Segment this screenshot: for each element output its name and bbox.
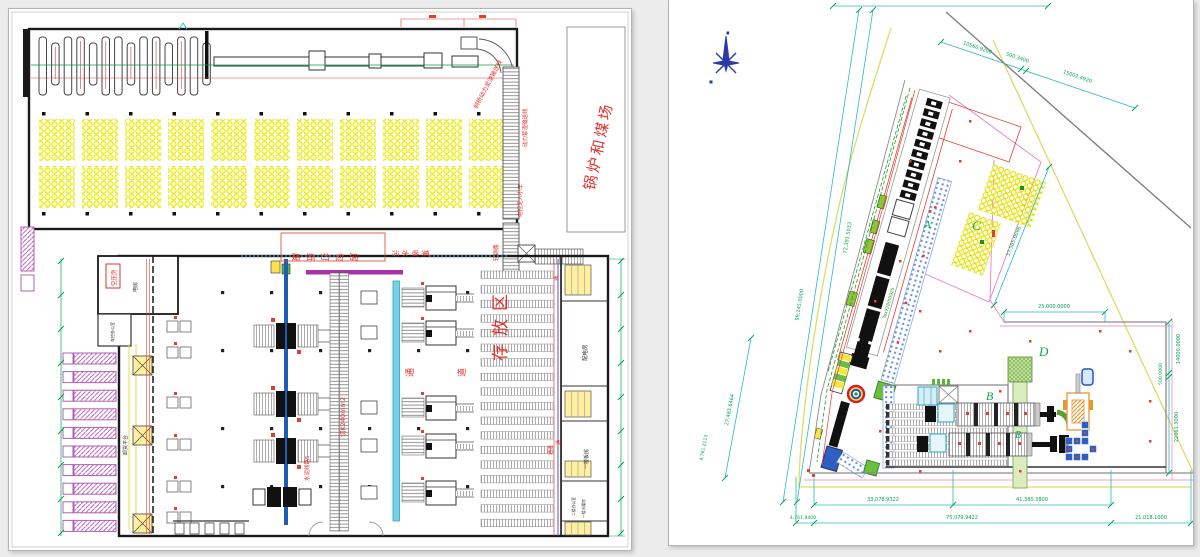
room-1-label: 配电房 (581, 344, 589, 361)
bale-storage (39, 119, 505, 208)
dim-left-4: 4,761.2113 (699, 434, 710, 461)
toilet-stall (175, 523, 184, 534)
cable-label: 切K240mm2 (339, 397, 347, 437)
aisle-side-label: 通道 (547, 445, 554, 455)
position-dot (1129, 350, 1132, 353)
column-dot (129, 212, 133, 216)
pulper-unit (271, 433, 275, 437)
dim-bottom-e: 21,018.1000 (1135, 515, 1167, 521)
bale-stack (469, 166, 505, 208)
toilet-stall (190, 523, 199, 534)
pulper-unit (298, 393, 318, 415)
truck (74, 502, 116, 513)
rewinder-machine (361, 486, 377, 499)
storage-row (481, 432, 553, 440)
dim-left-3: 27,483.6464 (724, 394, 736, 426)
bale-stack (39, 166, 75, 208)
storage-row (481, 475, 553, 483)
truck (63, 409, 73, 420)
machine-slot (39, 37, 47, 95)
position-dot (939, 350, 942, 353)
unloading-label: 卸货平台 (122, 435, 129, 455)
rewinder-machine (402, 398, 424, 417)
equipment-mark (167, 397, 178, 408)
bale-stack (82, 166, 118, 208)
position-dot (929, 210, 932, 213)
cart-label: 电控无人小车 (516, 183, 524, 217)
column-dot (303, 112, 307, 116)
bale-stack (340, 166, 376, 208)
truck (74, 372, 116, 383)
column-dot (434, 212, 438, 216)
storage-row (481, 373, 553, 381)
rewinder-machine (361, 439, 377, 452)
conveyor-row (886, 404, 889, 410)
equipment-mark (180, 321, 191, 332)
position-dot (1029, 340, 1032, 343)
truck (63, 427, 73, 438)
floor-plan-drawing: 锅炉和煤场 斜桥动力浆渣输送线 动力浆渣输送线 电控无人小车 轻钢棚 空压房 电… (9, 9, 631, 550)
bale-stack (211, 119, 247, 161)
bale-stack (82, 119, 118, 161)
position-dot (909, 160, 912, 163)
truck (74, 409, 116, 420)
equipment-mark (167, 347, 178, 358)
pulper-unit (254, 440, 274, 462)
storage-row (481, 388, 553, 396)
column-dot (319, 427, 322, 430)
rewinder-machine (426, 443, 432, 450)
storage-row (481, 402, 553, 410)
truck (63, 372, 73, 383)
bale-stack (469, 119, 505, 161)
pulper-unit (271, 318, 275, 322)
bale-stack (254, 166, 290, 208)
storage-row (481, 461, 553, 469)
column-dot (466, 427, 469, 430)
bale-stack (168, 119, 204, 161)
bale-stack (426, 119, 462, 161)
column-dot (368, 427, 371, 430)
dim-top-2: 500.3400 (1005, 51, 1030, 64)
area-c-label: C (972, 218, 981, 233)
toilet-stalls (175, 523, 244, 534)
rewinder-machine (426, 490, 432, 497)
pulper-unit (276, 391, 285, 417)
truck (63, 353, 73, 364)
rewinder-machine (421, 317, 424, 320)
floor-plan-sheet: 锅炉和煤场 斜桥动力浆渣输送线 动力浆渣输送线 电控无人小车 轻钢棚 空压房 电… (8, 8, 632, 551)
truck (63, 502, 73, 513)
rewinder-machine (402, 436, 424, 455)
equipment-mark (174, 434, 177, 437)
column-dot (260, 212, 264, 216)
conveyor-row (886, 460, 889, 466)
rewinder-machine (421, 430, 424, 433)
dim-bottom-b: 41,380.3800 (1016, 497, 1048, 503)
equipment-mark (167, 481, 178, 492)
bale-stack (125, 166, 161, 208)
right-rooms: 配电房 一楼板房 二楼办公室 一楼水暖房 通 通 (553, 256, 608, 536)
pulper-unit (287, 391, 296, 417)
dim-top-1: 10560.9200 (962, 40, 993, 56)
rewinder-machine (361, 401, 377, 414)
cyan-conveyor (393, 281, 400, 521)
rewinder-machine (402, 323, 424, 342)
bale-stack (125, 119, 161, 161)
machine-slot (115, 37, 123, 95)
pulper-unit (276, 438, 285, 464)
rewinder-machine (456, 406, 474, 411)
power-room-label: 电房 (132, 282, 139, 292)
machine-slot (190, 37, 198, 95)
site-plan-drawing: Tex7280t0925 (669, 0, 1193, 545)
position-dot (999, 390, 1002, 393)
truck (74, 390, 116, 401)
conveyor-mid-label: 动力浆渣输送线 (521, 108, 529, 147)
scanned-cad-screenshot: 锅炉和煤场 斜桥动力浆渣输送线 动力浆渣输送线 电控无人小车 轻钢棚 空压房 电… (0, 0, 1200, 557)
position-dot (919, 310, 922, 313)
dim-diag-c: 37,505.0096 (1005, 226, 1022, 258)
pulper-unit (297, 465, 301, 469)
column-dot (42, 212, 46, 216)
purple-rail (306, 270, 403, 275)
side-ramp (21, 227, 34, 271)
column-dot (270, 291, 273, 294)
position-dot (874, 300, 877, 303)
stairs (565, 265, 591, 535)
dim-left-2: 99,145.0000 (795, 289, 806, 321)
column-dot (417, 349, 420, 352)
dim-tick (938, 39, 944, 45)
bale-stack (211, 166, 247, 208)
position-dot (1149, 440, 1152, 443)
equipment-mark (174, 316, 177, 319)
dim-right-3: 22061.3000 (1174, 412, 1180, 442)
rewinder-machine (456, 444, 474, 449)
compass-icon (710, 32, 739, 83)
dim-bottom-c: 4,761.9400 (790, 515, 816, 521)
toilet-stall (220, 523, 229, 534)
column-dot (434, 112, 438, 116)
equipment-mark (167, 439, 178, 450)
truck (74, 427, 116, 438)
equipment-mark (174, 476, 177, 479)
column-dot (260, 112, 264, 116)
rewinder-machine (402, 288, 424, 307)
site-plan-sheet: Tex7280t0925 (668, 0, 1194, 546)
storage-row (481, 490, 553, 498)
column-dot (466, 349, 469, 352)
pipe-block (1068, 448, 1070, 450)
equipment-mark (174, 507, 177, 510)
rewinder-machine (361, 291, 377, 304)
truck (63, 520, 73, 531)
bale-stack (39, 119, 75, 161)
pipe-block (1082, 438, 1089, 445)
truck (74, 520, 116, 531)
pipe-block (1084, 432, 1086, 434)
truck (74, 353, 116, 364)
bale-stack (340, 119, 376, 161)
column-dot (221, 485, 224, 488)
rewinder-machine (456, 491, 474, 496)
cutting-conveyor (330, 273, 339, 531)
rewinder-machines (361, 282, 474, 505)
storage-row (481, 417, 553, 425)
tank-icon (1082, 369, 1093, 385)
compressor-room-label: 空压房 (110, 269, 118, 286)
area-b-label: B (986, 389, 994, 403)
column-dot (303, 212, 307, 216)
pulper-unit (271, 386, 275, 390)
truck (63, 483, 73, 494)
conveyor-row (886, 420, 889, 426)
conveyor-row (886, 428, 889, 434)
pass-mid-char: 通 (555, 440, 562, 445)
machine-slot (89, 43, 97, 85)
area-b2-label: B (1015, 430, 1021, 441)
storage-area-label: 存放区 (491, 286, 511, 361)
column-dot (86, 112, 90, 116)
pulper-unit (297, 350, 301, 354)
column-dot (417, 427, 420, 430)
rewinder-machine (402, 483, 424, 502)
toilet-stall (205, 523, 214, 534)
equipment-marks (167, 316, 191, 523)
equipment-mark (180, 439, 191, 450)
truck (74, 465, 116, 476)
office-label: 车控办公室 (109, 322, 115, 342)
column-dot (319, 291, 322, 294)
bale-stack (383, 119, 419, 161)
position-dot (959, 160, 962, 163)
machine-slot (140, 37, 148, 95)
toilet-stall (235, 523, 244, 534)
head-machine (1063, 369, 1093, 430)
bale-stack (254, 119, 290, 161)
dim-tick (1132, 105, 1138, 111)
dim-tick (1023, 68, 1029, 74)
bale-stack (383, 166, 419, 208)
bale-stack (426, 166, 462, 208)
truck (63, 446, 73, 457)
equipment-mark (180, 347, 191, 358)
shed-label: 轻钢棚 (492, 244, 500, 261)
bale-stack (297, 119, 333, 161)
rewinder-machine (426, 330, 432, 337)
truck (74, 483, 116, 494)
column-dot (347, 112, 351, 116)
floor-line-label: 水泥线路5 (303, 455, 311, 481)
storage-row (481, 271, 553, 279)
dim-right-2: 500.0000 (1158, 363, 1164, 385)
position-dot (1019, 470, 1022, 473)
dim-top-3: 15002.4920 (1062, 69, 1093, 85)
pipe-block (1066, 438, 1073, 445)
pulper-unit (287, 438, 296, 464)
position-dot (899, 260, 902, 263)
room-4-label: 一楼水暖房 (581, 499, 586, 518)
conveyor-row (886, 436, 889, 442)
rewinder-machine (421, 477, 424, 480)
room-2-label: 一楼板房 (583, 449, 590, 469)
column-dot (173, 112, 177, 116)
conveyor-row (889, 460, 1007, 466)
column-dot (319, 349, 322, 352)
column-dot (368, 349, 371, 352)
column-dot (270, 427, 273, 430)
pulper-unit (276, 323, 285, 349)
equipment-mark (180, 481, 191, 492)
storage-row (481, 519, 553, 527)
area-a-label: A (923, 219, 931, 231)
column-dot (477, 112, 481, 116)
column-dot (129, 112, 133, 116)
column-dot (390, 212, 394, 216)
position-dot (1099, 330, 1102, 333)
position-dot (969, 330, 972, 333)
end-machine (253, 487, 311, 507)
conveyor-row (886, 412, 889, 418)
conveyor-row (886, 452, 889, 458)
position-dot (919, 470, 922, 473)
rewinder-machine (456, 331, 474, 336)
pulper-unit (297, 418, 301, 422)
column-dot (319, 485, 322, 488)
machine-slot (64, 37, 72, 95)
column-dot (477, 212, 481, 216)
red-dim-top (401, 19, 516, 27)
column-dot (390, 112, 394, 116)
truck (63, 390, 73, 401)
truck (63, 465, 73, 476)
position-dot (1149, 400, 1152, 403)
machine-slot (165, 43, 173, 85)
lower-hall: 空压房 电房 车控办公室 卸货平台 (58, 233, 625, 536)
truck-dock (63, 353, 116, 531)
pipe-block (1076, 440, 1078, 442)
equipment-mark (167, 321, 178, 332)
stock-patch-1 (977, 164, 1046, 228)
dim-tick (1018, 66, 1024, 72)
pipe-block (1066, 454, 1073, 461)
rewinder-machine (426, 405, 432, 412)
dim-right-1: 14000.0000 (1176, 334, 1182, 364)
dim-left-1: 72,391.5033 (843, 222, 854, 254)
column-dot (173, 212, 177, 216)
dim-bottom-d: 75,079.9422 (946, 515, 978, 521)
lower-plant (804, 80, 1193, 488)
pulping-bend (814, 335, 879, 478)
position-dot (879, 430, 882, 433)
aisle-left-char: 通 (405, 368, 416, 377)
position-dot (969, 120, 972, 123)
rewinder-machine (456, 296, 474, 301)
pulper-unit (254, 393, 274, 415)
tank-box (918, 387, 937, 405)
equipment-mark (174, 392, 177, 395)
dim-bottom-a: 33,078.9322 (867, 497, 899, 503)
column-dot (216, 212, 220, 216)
column-dot (221, 349, 224, 352)
column-dot (270, 349, 273, 352)
pulper-unit (298, 325, 318, 347)
room-3-label: 二楼办公室 (571, 497, 576, 516)
pipe-block (1092, 448, 1094, 450)
equipment-mark (180, 397, 191, 408)
pipe-block (1082, 422, 1089, 429)
pulper-unit (254, 325, 274, 347)
dim-notch: 25,000.0000 (1038, 304, 1070, 310)
column-dot (42, 112, 46, 116)
bale-stack (168, 166, 204, 208)
aisle-right-char: 道 (456, 368, 468, 377)
column-dot (221, 427, 224, 430)
conveyor-row (886, 444, 889, 450)
rewinder-machine (421, 282, 424, 285)
rewinder-machine (421, 392, 424, 395)
bale-stack (297, 166, 333, 208)
pulper-units (254, 318, 340, 469)
upper-hall (23, 15, 517, 229)
storage-row (481, 446, 553, 454)
column-dot (347, 212, 351, 216)
rewinder-machine (426, 295, 432, 302)
rewinder-machine (361, 326, 377, 339)
area-d-label: D (1038, 344, 1049, 359)
pipe-block (1076, 456, 1078, 458)
equipment-mark (174, 342, 177, 345)
column-dot (466, 485, 469, 488)
truck (74, 446, 116, 457)
column-dot (221, 291, 224, 294)
pass-top-char: 通 (553, 276, 560, 281)
pulper-unit (287, 323, 296, 349)
column-dot (86, 212, 90, 216)
top-machine-row (39, 37, 210, 95)
storage-row (481, 505, 553, 512)
column-dot (216, 112, 220, 116)
pipe-block (1082, 454, 1089, 461)
